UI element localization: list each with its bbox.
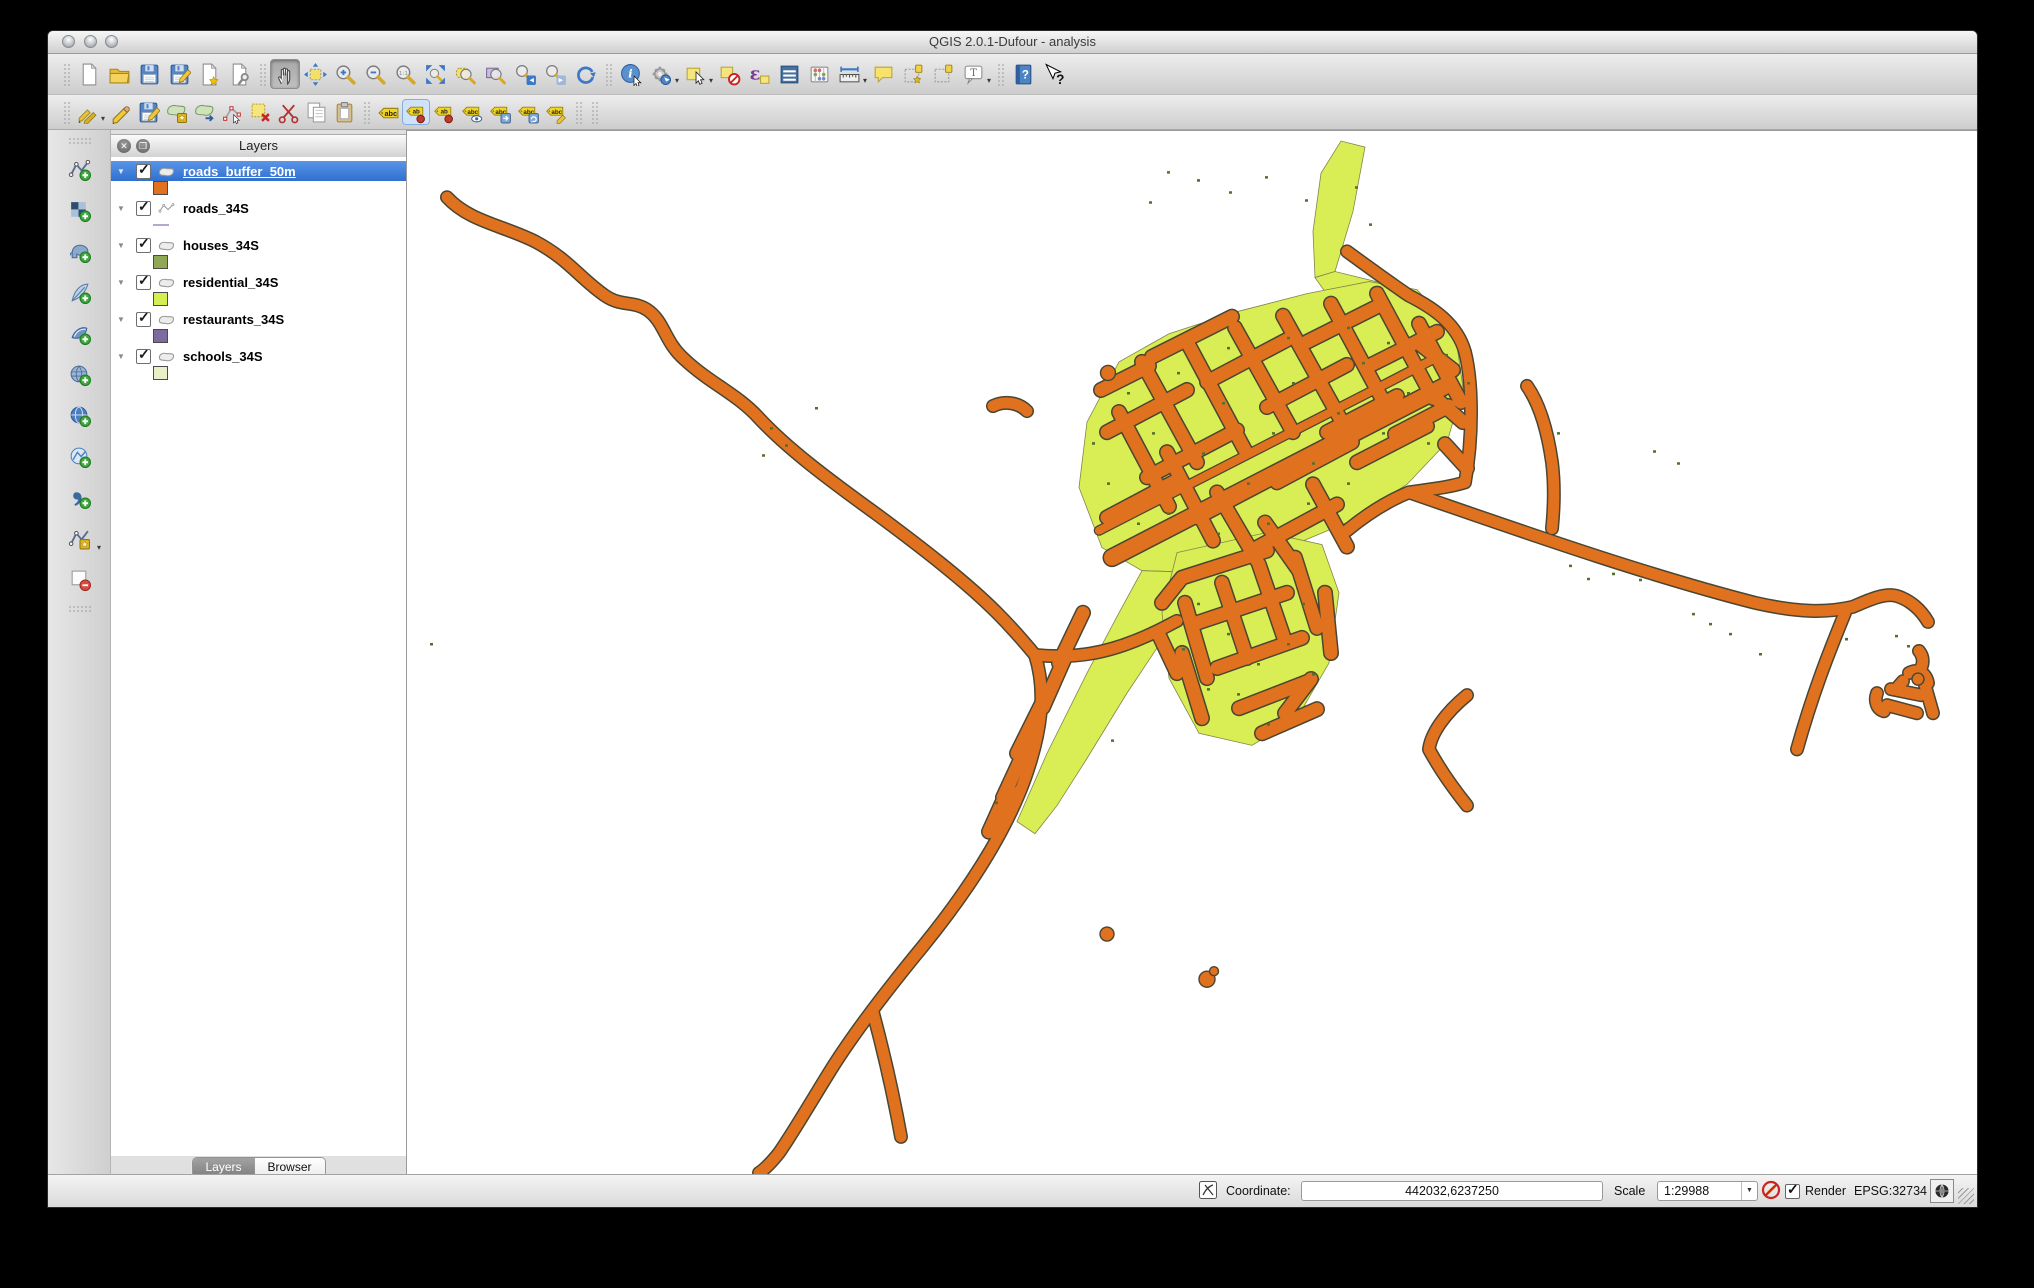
layers-panel: ✕ ❐ Layers ▼ ✓ roads_buffer_50m ▼ ✓ bbox=[111, 130, 407, 1180]
scissors-icon bbox=[277, 101, 300, 124]
layer-visibility-checkbox[interactable]: ✓ bbox=[136, 238, 151, 253]
zoom-to-selection-icon bbox=[454, 63, 477, 86]
zoom-to-layer-icon bbox=[484, 63, 507, 86]
measure-ruler-icon bbox=[838, 63, 861, 86]
layer-row-residential-34s[interactable]: ▼ ✓ residential_34S bbox=[111, 272, 406, 292]
chevron-down-icon[interactable]: ▾ bbox=[97, 543, 101, 552]
expand-triangle-icon[interactable]: ▼ bbox=[117, 204, 127, 213]
stop-render-icon[interactable] bbox=[1760, 1179, 1782, 1201]
field-calculator-button[interactable] bbox=[804, 59, 834, 89]
expand-triangle-icon[interactable]: ▼ bbox=[117, 241, 127, 250]
toolbar-drag-handle[interactable] bbox=[574, 100, 582, 124]
zoom-full-icon bbox=[424, 63, 447, 86]
add-vector-icon bbox=[68, 158, 91, 181]
save-edits-icon bbox=[137, 101, 160, 124]
add-delimited-text-layer-button[interactable] bbox=[63, 481, 95, 513]
current-edits-button[interactable] bbox=[74, 99, 102, 125]
polygon-layer-icon bbox=[158, 239, 176, 252]
open-attribute-table-button[interactable] bbox=[774, 59, 804, 89]
change-label-button[interactable] bbox=[542, 99, 570, 125]
layer-symbol-swatch bbox=[153, 329, 168, 343]
labeling-icon bbox=[377, 101, 400, 124]
add-mssql-layer-button[interactable] bbox=[63, 317, 95, 349]
polygon-layer-icon bbox=[158, 313, 176, 326]
highlight-pinned-labels-button[interactable] bbox=[430, 99, 458, 125]
coordinate-input[interactable]: 442032,6237250 bbox=[1301, 1181, 1603, 1201]
main-content: ▾ ✕ ❐ Layers ▼ ✓ roads_buffer_50m bbox=[48, 130, 1977, 1180]
expand-triangle-icon[interactable]: ▼ bbox=[117, 167, 127, 176]
add-oracle-layer-button[interactable] bbox=[63, 358, 95, 390]
zoom-next-button[interactable] bbox=[540, 59, 570, 89]
label-visibility-icon bbox=[461, 101, 484, 124]
layers-panel-header: ✕ ❐ Layers bbox=[111, 134, 406, 158]
window-title: QGIS 2.0.1-Dufour - analysis bbox=[48, 34, 1977, 49]
paste-icon bbox=[333, 101, 356, 124]
chevron-down-icon[interactable]: ▼ bbox=[1741, 1182, 1757, 1200]
node-tool-icon bbox=[221, 101, 244, 124]
touch-pan-button[interactable] bbox=[270, 59, 300, 89]
add-wms-layer-button[interactable] bbox=[63, 399, 95, 431]
manage-layers-toolbar: ▾ bbox=[48, 130, 111, 1180]
zoom-to-selection-button[interactable] bbox=[450, 59, 480, 89]
new-bookmark-icon bbox=[902, 63, 925, 86]
coordinate-label: Coordinate: bbox=[1226, 1184, 1291, 1198]
layer-visibility-checkbox[interactable]: ✓ bbox=[136, 201, 151, 216]
show-bookmarks-button[interactable] bbox=[928, 59, 958, 89]
delimited-text-comma-icon bbox=[68, 486, 91, 509]
mssql-icon bbox=[68, 322, 91, 345]
save-as-icon bbox=[168, 63, 191, 86]
wfs-globe-icon bbox=[68, 445, 91, 468]
delete-selected-icon bbox=[249, 101, 272, 124]
help-contents-button[interactable] bbox=[1008, 59, 1038, 89]
remove-layer-icon bbox=[68, 568, 91, 591]
new-shapefile-layer-button[interactable]: ▾ bbox=[63, 522, 95, 554]
pin-labels-icon bbox=[405, 101, 428, 124]
new-bookmark-button[interactable] bbox=[898, 59, 928, 89]
pan-to-selection-icon bbox=[304, 63, 327, 86]
expand-triangle-icon[interactable]: ▼ bbox=[117, 315, 127, 324]
toolbar-drag-handle[interactable] bbox=[258, 62, 266, 86]
layer-row-roads-buffer-50m[interactable]: ▼ ✓ roads_buffer_50m bbox=[111, 161, 406, 181]
expand-triangle-icon[interactable]: ▼ bbox=[117, 278, 127, 287]
toolbar-drag-handle[interactable] bbox=[590, 100, 598, 124]
whats-this-button[interactable] bbox=[1038, 59, 1068, 89]
cut-features-button[interactable] bbox=[274, 99, 302, 125]
text-annotation-button[interactable] bbox=[958, 59, 988, 89]
layer-row-roads-34s[interactable]: ▼ ✓ roads_34S bbox=[111, 198, 406, 218]
current-edits-icon bbox=[77, 101, 100, 124]
refresh-icon bbox=[574, 63, 597, 86]
move-label-icon bbox=[489, 101, 512, 124]
run-feature-action-button[interactable] bbox=[646, 59, 676, 89]
layer-visibility-checkbox[interactable]: ✓ bbox=[136, 164, 151, 179]
pinned-labels-icon bbox=[433, 101, 456, 124]
scale-combobox[interactable]: 1:29988 ▼ bbox=[1657, 1181, 1758, 1201]
polygon-layer-icon bbox=[158, 276, 176, 289]
layer-name: roads_buffer_50m bbox=[183, 164, 296, 179]
save-project-icon bbox=[138, 63, 161, 86]
new-print-composer-button[interactable] bbox=[194, 59, 224, 89]
zoom-native-button[interactable] bbox=[390, 59, 420, 89]
pin-unpin-labels-button[interactable] bbox=[402, 99, 430, 125]
layer-visibility-checkbox[interactable]: ✓ bbox=[136, 275, 151, 290]
toolbar-drag-handle[interactable] bbox=[362, 100, 370, 124]
status-bar: Coordinate: 442032,6237250 Scale 1:29988… bbox=[48, 1174, 1977, 1207]
scale-value: 1:29988 bbox=[1658, 1182, 1741, 1200]
move-feature-icon bbox=[193, 101, 216, 124]
toolbar-drag-handle[interactable] bbox=[67, 604, 91, 612]
road-buffer-fills bbox=[447, 197, 1933, 1173]
zoom-in-button[interactable] bbox=[330, 59, 360, 89]
render-label: Render bbox=[1805, 1184, 1846, 1198]
toolbar-drag-handle[interactable] bbox=[62, 62, 70, 86]
identify-features-button[interactable] bbox=[616, 59, 646, 89]
add-wfs-layer-button[interactable] bbox=[63, 440, 95, 472]
layer-name: houses_34S bbox=[183, 238, 259, 253]
add-raster-icon bbox=[68, 199, 91, 222]
deselect-features-button[interactable] bbox=[714, 59, 744, 89]
crs-status-button[interactable] bbox=[1930, 1179, 1954, 1203]
zoom-next-icon bbox=[544, 63, 567, 86]
polygon-layer-icon bbox=[158, 165, 176, 178]
screenshot-root: { "window": { "title": "QGIS 2.0.1-Dufou… bbox=[0, 0, 2034, 1288]
text-annotation-icon bbox=[962, 63, 985, 86]
spatialite-feather-icon bbox=[68, 281, 91, 304]
zoom-last-icon bbox=[514, 63, 537, 86]
show-hide-labels-button[interactable] bbox=[458, 99, 486, 125]
layer-row-houses-34s[interactable]: ▼ ✓ houses_34S bbox=[111, 235, 406, 255]
zoom-to-layer-button[interactable] bbox=[480, 59, 510, 89]
node-tool-button[interactable] bbox=[218, 99, 246, 125]
change-label-icon bbox=[545, 101, 568, 124]
add-feature-button[interactable] bbox=[162, 99, 190, 125]
layer-row-restaurants-34s[interactable]: ▼ ✓ restaurants_34S bbox=[111, 309, 406, 329]
layer-row-schools-34s[interactable]: ▼ ✓ schools_34S bbox=[111, 346, 406, 366]
new-project-button[interactable] bbox=[74, 59, 104, 89]
map-tips-button[interactable] bbox=[868, 59, 898, 89]
toolbar-drag-handle[interactable] bbox=[67, 136, 91, 144]
add-raster-layer-button[interactable] bbox=[63, 194, 95, 226]
measure-button[interactable] bbox=[834, 59, 864, 89]
expression-icon bbox=[748, 63, 771, 86]
oracle-globe-icon bbox=[68, 363, 91, 386]
toolbar-drag-handle[interactable] bbox=[604, 62, 612, 86]
feature-action-icon bbox=[650, 63, 673, 86]
open-project-button[interactable] bbox=[104, 59, 134, 89]
labeling-button[interactable] bbox=[374, 99, 402, 125]
toggle-editing-button[interactable] bbox=[106, 99, 134, 125]
remove-layer-button[interactable] bbox=[63, 563, 95, 595]
pan-hand-icon bbox=[274, 63, 297, 86]
add-postgis-layer-button[interactable] bbox=[63, 235, 95, 267]
render-checkbox[interactable]: ✓ bbox=[1785, 1184, 1800, 1199]
new-project-icon bbox=[78, 63, 101, 86]
resize-grip[interactable] bbox=[1958, 1188, 1974, 1204]
refresh-map-button[interactable] bbox=[570, 59, 600, 89]
layer-name: roads_34S bbox=[183, 201, 249, 216]
toolbar-drag-handle[interactable] bbox=[996, 62, 1004, 86]
extents-toggle-icon[interactable] bbox=[1197, 1179, 1219, 1201]
qgis-window: QGIS 2.0.1-Dufour - analysis ▾ ▾ ▾ bbox=[47, 30, 1978, 1208]
whats-this-icon bbox=[1042, 63, 1065, 86]
layer-symbol-swatch bbox=[153, 255, 168, 269]
save-project-button[interactable] bbox=[134, 59, 164, 89]
layer-symbol-swatch bbox=[153, 181, 168, 195]
attribute-table-icon bbox=[778, 63, 801, 86]
layer-name: restaurants_34S bbox=[183, 312, 284, 327]
add-feature-icon bbox=[165, 101, 188, 124]
bookmarks-icon bbox=[932, 63, 955, 86]
pencil-icon bbox=[109, 101, 132, 124]
layer-visibility-checkbox[interactable]: ✓ bbox=[136, 349, 151, 364]
toolbar-main: ▾ ▾ ▾ ▾ bbox=[48, 54, 1977, 95]
rotate-label-button[interactable] bbox=[514, 99, 542, 125]
copy-icon bbox=[305, 101, 328, 124]
open-project-icon bbox=[108, 63, 131, 86]
zoom-full-button[interactable] bbox=[420, 59, 450, 89]
pan-to-selection-button[interactable] bbox=[300, 59, 330, 89]
select-features-button[interactable] bbox=[680, 59, 710, 89]
new-composer-icon bbox=[198, 63, 221, 86]
select-by-expression-button[interactable] bbox=[744, 59, 774, 89]
title-bar: QGIS 2.0.1-Dufour - analysis bbox=[48, 31, 1977, 54]
crs-globe-icon bbox=[1933, 1182, 1951, 1200]
layer-list: ▼ ✓ roads_buffer_50m ▼ ✓ roads_34S ▼ bbox=[111, 157, 406, 1156]
polygon-layer-icon bbox=[158, 350, 176, 363]
composer-manager-button[interactable] bbox=[224, 59, 254, 89]
crs-status-label: EPSG:32734 bbox=[1854, 1184, 1927, 1198]
zoom-last-button[interactable] bbox=[510, 59, 540, 89]
zoom-native-icon bbox=[394, 63, 417, 86]
map-canvas[interactable] bbox=[407, 130, 1977, 1180]
move-feature-button[interactable] bbox=[190, 99, 218, 125]
line-layer-icon bbox=[158, 202, 176, 215]
composer-manager-icon bbox=[228, 63, 251, 86]
move-label-button[interactable] bbox=[486, 99, 514, 125]
zoom-out-icon bbox=[364, 63, 387, 86]
select-features-icon bbox=[684, 63, 707, 86]
wms-globe-icon bbox=[68, 404, 91, 427]
expand-triangle-icon[interactable]: ▼ bbox=[117, 352, 127, 361]
layer-symbol-swatch bbox=[153, 292, 168, 306]
add-vector-layer-button[interactable] bbox=[63, 153, 95, 185]
abacus-icon bbox=[808, 63, 831, 86]
zoom-in-icon bbox=[334, 63, 357, 86]
copy-features-button[interactable] bbox=[302, 99, 330, 125]
map-drawing bbox=[407, 131, 1977, 1180]
save-project-as-button[interactable] bbox=[164, 59, 194, 89]
toolbar-digitizing: ▾ bbox=[48, 95, 1977, 130]
layer-symbol-swatch bbox=[153, 366, 168, 380]
postgis-elephant-icon bbox=[68, 240, 91, 263]
speech-bubble-icon bbox=[872, 63, 895, 86]
paste-features-button[interactable] bbox=[330, 99, 358, 125]
layer-name: residential_34S bbox=[183, 275, 278, 290]
new-shapefile-icon bbox=[68, 527, 91, 550]
identify-icon bbox=[620, 63, 643, 86]
delete-selected-button[interactable] bbox=[246, 99, 274, 125]
rotate-label-icon bbox=[517, 101, 540, 124]
layer-visibility-checkbox[interactable]: ✓ bbox=[136, 312, 151, 327]
layer-name: schools_34S bbox=[183, 349, 263, 364]
deselect-icon bbox=[718, 63, 741, 86]
save-layer-edits-button[interactable] bbox=[134, 99, 162, 125]
toolbar-drag-handle[interactable] bbox=[62, 100, 70, 124]
layers-panel-title: Layers bbox=[111, 138, 406, 153]
add-spatialite-layer-button[interactable] bbox=[63, 276, 95, 308]
layer-symbol-swatch bbox=[153, 224, 169, 226]
help-book-icon bbox=[1012, 63, 1035, 86]
zoom-out-button[interactable] bbox=[360, 59, 390, 89]
scale-label: Scale bbox=[1614, 1184, 1645, 1198]
